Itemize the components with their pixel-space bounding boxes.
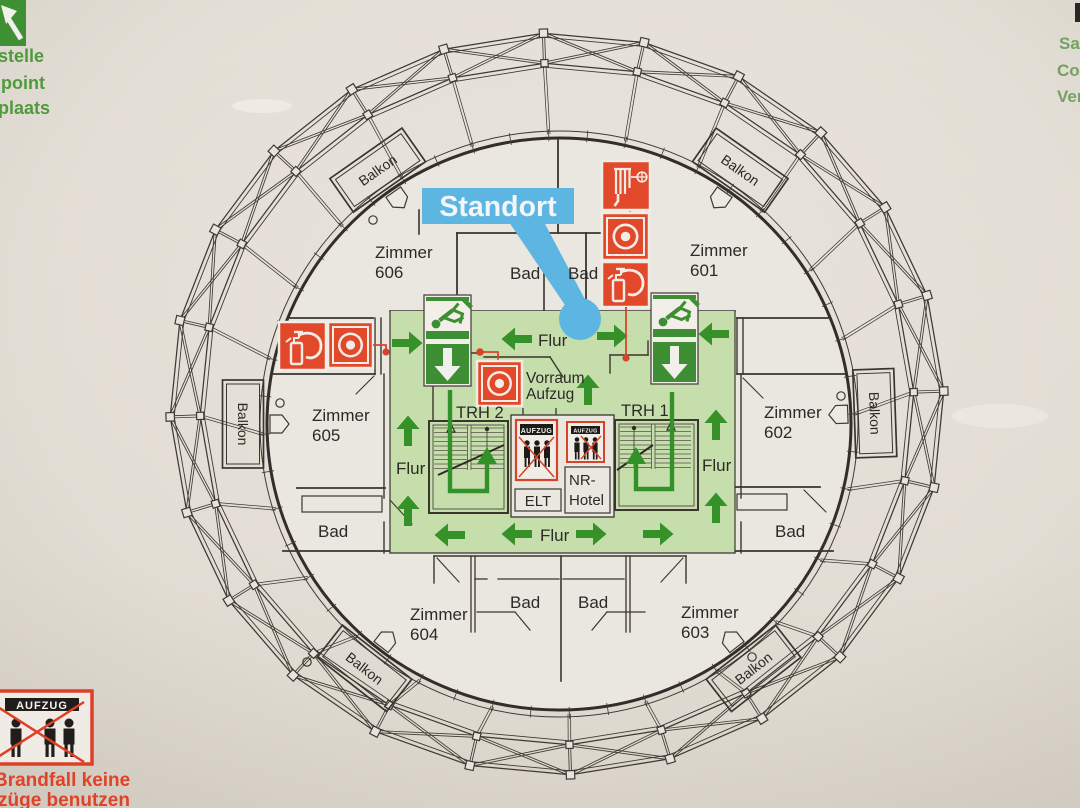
- svg-text:Balkon: Balkon: [235, 403, 251, 446]
- svg-text:TRH 1: TRH 1: [621, 402, 669, 420]
- svg-text:Flur: Flur: [540, 526, 570, 545]
- svg-text:Flur: Flur: [396, 459, 426, 478]
- svg-text:Zimmer: Zimmer: [681, 603, 739, 622]
- svg-text:züge benutzen: züge benutzen: [0, 790, 130, 808]
- svg-text:Bad: Bad: [510, 264, 540, 283]
- svg-text:Balkon: Balkon: [866, 392, 883, 435]
- svg-text:Aufzug: Aufzug: [526, 386, 574, 403]
- svg-text:NR-: NR-: [569, 472, 596, 489]
- svg-text:point: point: [1, 73, 45, 93]
- svg-text:Bad: Bad: [568, 264, 598, 283]
- svg-text:606: 606: [375, 263, 403, 282]
- svg-text:Zimmer: Zimmer: [690, 241, 748, 260]
- svg-text:602: 602: [764, 423, 792, 442]
- svg-text:TRH 2: TRH 2: [456, 404, 504, 422]
- svg-text:604: 604: [410, 625, 438, 644]
- svg-text:Zimmer: Zimmer: [312, 406, 370, 425]
- svg-text:Bad: Bad: [578, 593, 608, 612]
- svg-text:Zimmer: Zimmer: [764, 403, 822, 422]
- svg-text:Brandfall keine: Brandfall keine: [0, 770, 130, 791]
- svg-text:603: 603: [681, 623, 709, 642]
- svg-text:Zimmer: Zimmer: [375, 243, 433, 262]
- svg-text:ELT: ELT: [525, 493, 551, 510]
- svg-text:Flur: Flur: [538, 331, 568, 350]
- svg-text:Bad: Bad: [510, 593, 540, 612]
- svg-text:AUFZUG: AUFZUG: [16, 700, 68, 712]
- svg-text:Col: Col: [1057, 61, 1080, 80]
- svg-text:Hotel: Hotel: [569, 492, 604, 509]
- svg-text:Zimmer: Zimmer: [410, 605, 468, 624]
- svg-text:Vorraum: Vorraum: [526, 370, 585, 387]
- svg-text:605: 605: [312, 426, 340, 445]
- svg-text:stelle: stelle: [0, 46, 44, 66]
- svg-text:Sam: Sam: [1059, 34, 1080, 53]
- svg-text:601: 601: [690, 261, 718, 280]
- svg-text:Bad: Bad: [775, 522, 805, 541]
- svg-text:AUFZUG: AUFZUG: [521, 428, 553, 435]
- svg-text:Standort: Standort: [439, 191, 557, 223]
- svg-text:Ver: Ver: [1057, 87, 1080, 106]
- svg-text:Flur: Flur: [702, 456, 732, 475]
- svg-text:plaats: plaats: [0, 98, 50, 118]
- svg-text:AUFZUG: AUFZUG: [573, 428, 597, 434]
- svg-text:Bad: Bad: [318, 522, 348, 541]
